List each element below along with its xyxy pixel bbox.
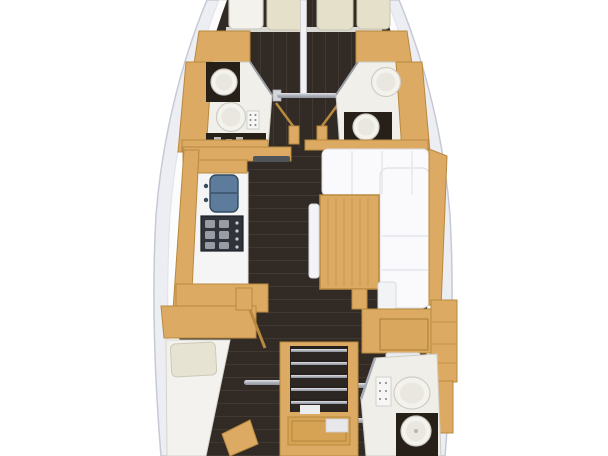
stove-knob (235, 237, 238, 240)
stair-step (291, 352, 347, 360)
cabin-door-post (289, 126, 299, 144)
stair-step-edge (291, 375, 347, 378)
panel-button (385, 382, 387, 384)
pillow (267, 0, 305, 30)
stairs (291, 349, 347, 412)
pillow (317, 0, 353, 30)
stove-knob (235, 229, 238, 232)
pillow (170, 342, 217, 377)
burner-grate (205, 231, 215, 239)
panel-button (250, 114, 252, 116)
panel-button (385, 398, 387, 400)
head-door-post (352, 289, 367, 309)
chart-desk-top (380, 319, 428, 350)
salon-bench (309, 204, 319, 278)
burner-grate (219, 220, 229, 228)
forward-starboard-head (336, 62, 430, 152)
bow-starboard-wood-panel (356, 31, 412, 64)
panel-button (255, 124, 257, 126)
burner-grate (205, 220, 215, 228)
hatch-notch (326, 419, 348, 432)
pillow (357, 0, 390, 29)
burner-grate (219, 231, 229, 239)
stair-step (291, 391, 347, 399)
cabin-shelf (161, 306, 256, 338)
toilet-lid (377, 73, 396, 92)
panel-button (379, 398, 381, 400)
burner-grate (205, 242, 215, 249)
stove-knob (235, 221, 238, 224)
tv-bar (253, 156, 290, 162)
floor-plan-svg (0, 0, 608, 456)
faucet-knob (204, 184, 208, 188)
stair-step (291, 365, 347, 373)
stair-step-edge (291, 349, 347, 352)
forward-port-head (178, 62, 272, 152)
grab-rail (244, 380, 284, 385)
sink-drain (414, 429, 418, 433)
head-control-panel (247, 111, 259, 129)
stove-knob (235, 245, 238, 248)
sink-basin (358, 119, 375, 136)
yacht-floor-plan (0, 0, 608, 456)
panel-button (379, 390, 381, 392)
stair-step-edge (291, 401, 347, 404)
stair-step-edge (291, 388, 347, 391)
sink-basin (216, 74, 233, 91)
cabin-door-post (236, 288, 252, 310)
panel-button (255, 119, 257, 121)
toilet-lid (400, 383, 424, 404)
panel-button (255, 114, 257, 116)
pillow (229, 0, 263, 29)
nav-seat-back (378, 282, 396, 312)
toilet-lid (222, 108, 241, 127)
stair-landing (300, 405, 320, 414)
head-control-panel (376, 377, 391, 406)
panel-button (385, 390, 387, 392)
panel-button (250, 124, 252, 126)
center-bulkhead-wall (301, 0, 307, 97)
panel-button (379, 382, 381, 384)
salon-table (320, 195, 379, 289)
burner-grate (219, 242, 229, 249)
stair-step (291, 378, 347, 386)
stair-step-edge (291, 362, 347, 365)
faucet-knob (204, 198, 208, 202)
panel-button (250, 119, 252, 121)
bow-port-wood-panel (194, 31, 250, 64)
